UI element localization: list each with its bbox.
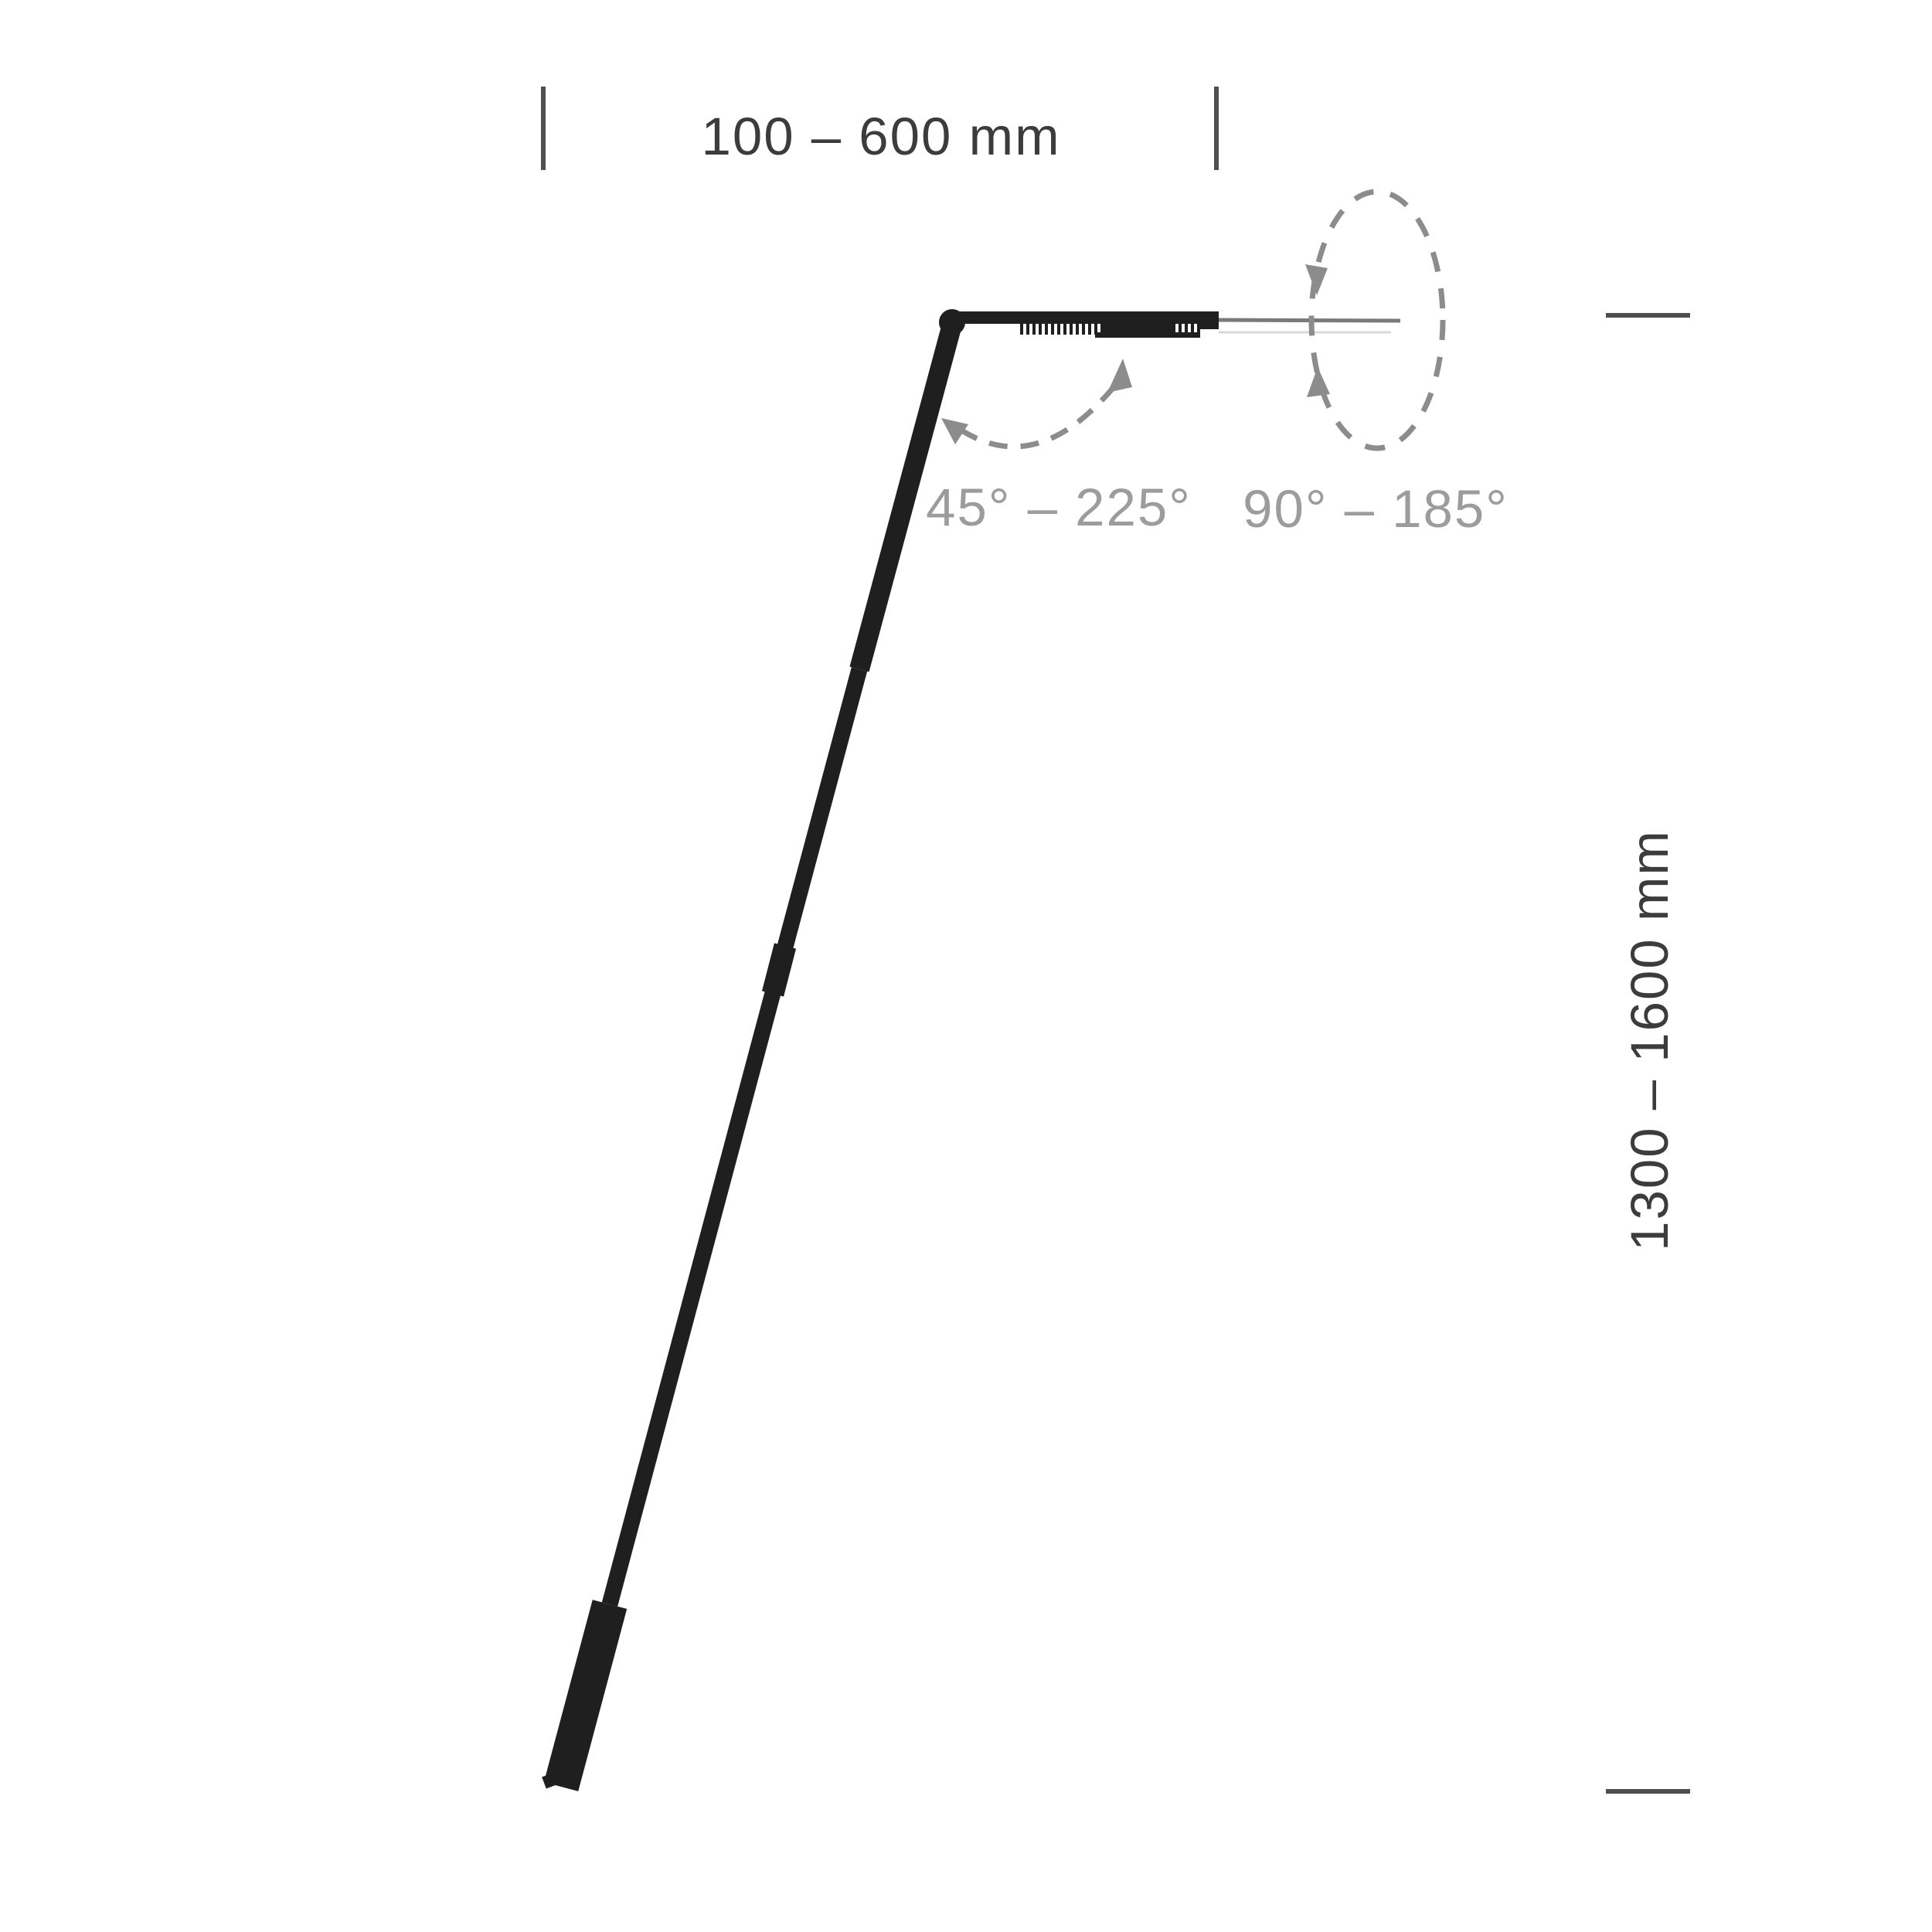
width-dimension-label: 100 – 600 mm [701, 107, 1060, 166]
lamp-dimension-diagram: 100 – 600 mm 1300 – 1600 mm [0, 0, 1932, 1932]
lamp-stem [544, 325, 952, 1787]
rotation-arrow-up [1307, 367, 1330, 397]
lamp-head-endcap [1199, 311, 1219, 329]
lamp-head-fins-left [1022, 324, 1102, 335]
tilt-angle-label: 45° – 225° [926, 478, 1192, 537]
stem-base-tube [561, 1604, 610, 1787]
stem-segment-middle [779, 669, 859, 970]
tilt-arc [961, 379, 1121, 447]
stem-segment-lower [610, 970, 779, 1604]
rotation-angle-label: 90° – 185° [1243, 479, 1509, 539]
height-dimension-label: 1300 – 1600 mm [1620, 829, 1679, 1251]
lamp-head-diffuser [1095, 332, 1200, 338]
stem-base-foot [544, 1774, 566, 1783]
lamp-head [939, 309, 1400, 338]
lamp-head-bar [957, 311, 1219, 324]
lamp-head-block [1104, 311, 1172, 335]
rotation-arrow-down [1305, 264, 1328, 295]
tilt-arc-arrow-up [1107, 359, 1132, 393]
tilt-motion-indicator [941, 359, 1132, 447]
